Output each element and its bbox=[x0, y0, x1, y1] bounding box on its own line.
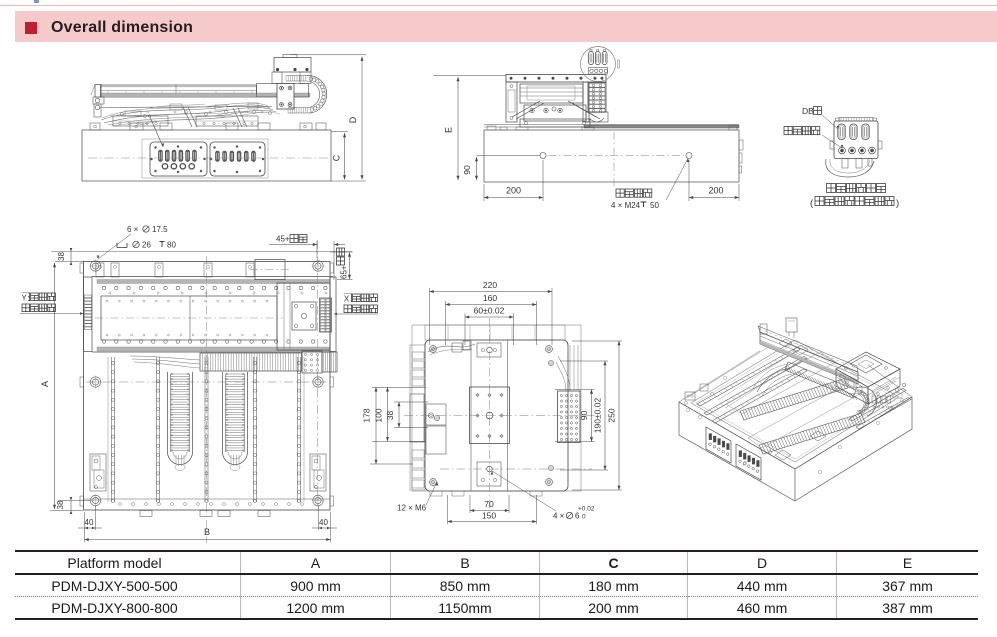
svg-text:Y: Y bbox=[21, 294, 27, 303]
svg-text:70: 70 bbox=[484, 499, 494, 509]
svg-text:150: 150 bbox=[482, 511, 496, 521]
svg-text:178: 178 bbox=[362, 408, 372, 422]
svg-text:60±0.02: 60±0.02 bbox=[474, 306, 505, 316]
svg-text:A: A bbox=[40, 381, 50, 387]
svg-text:38: 38 bbox=[57, 252, 66, 261]
svg-text:6: 6 bbox=[575, 512, 580, 521]
svg-text:17.5: 17.5 bbox=[152, 225, 168, 234]
svg-text:4 × M24: 4 × M24 bbox=[611, 201, 641, 210]
svg-text:50: 50 bbox=[650, 201, 659, 210]
svg-text:220: 220 bbox=[483, 280, 497, 290]
svg-text:12 × M6: 12 × M6 bbox=[397, 504, 427, 513]
svg-text:4 ×: 4 × bbox=[553, 512, 565, 521]
svg-text:200: 200 bbox=[506, 186, 521, 196]
svg-text:45+: 45+ bbox=[276, 235, 290, 244]
svg-text:6 ×: 6 × bbox=[127, 225, 139, 234]
svg-text:160: 160 bbox=[483, 293, 497, 303]
svg-text:100: 100 bbox=[374, 408, 384, 422]
svg-text:DB: DB bbox=[802, 106, 814, 116]
svg-text:B: B bbox=[204, 527, 210, 537]
svg-text:C: C bbox=[332, 154, 342, 161]
svg-text:X: X bbox=[344, 295, 350, 304]
svg-text:40: 40 bbox=[85, 518, 94, 527]
svg-text:40: 40 bbox=[319, 518, 328, 527]
svg-text:90: 90 bbox=[462, 165, 472, 175]
svg-text:38: 38 bbox=[56, 500, 65, 509]
svg-text:): ) bbox=[896, 198, 899, 209]
svg-text:65+: 65+ bbox=[340, 265, 349, 279]
svg-text:200: 200 bbox=[708, 186, 723, 196]
svg-text:D: D bbox=[348, 116, 358, 123]
svg-text:+0.02: +0.02 bbox=[578, 506, 595, 513]
svg-text:80: 80 bbox=[167, 241, 176, 250]
svg-text:190±0.02: 190±0.02 bbox=[593, 398, 603, 434]
svg-text:90: 90 bbox=[579, 411, 589, 421]
svg-text:(: ( bbox=[810, 198, 814, 209]
svg-text:38: 38 bbox=[385, 411, 395, 421]
svg-text:250: 250 bbox=[607, 408, 617, 422]
svg-text:0: 0 bbox=[582, 514, 586, 521]
svg-text:E: E bbox=[444, 127, 454, 133]
svg-text:26: 26 bbox=[142, 241, 151, 250]
